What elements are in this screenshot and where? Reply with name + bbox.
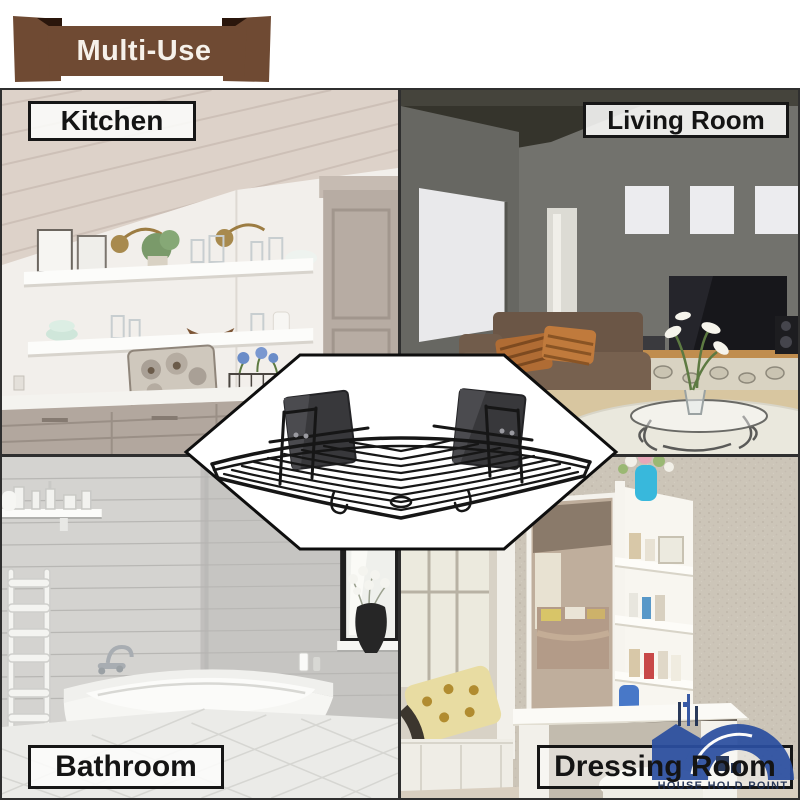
product-hexagon: [182, 350, 620, 554]
bathroom-label-text: Bathroom: [55, 750, 197, 784]
corner-shelf-product-image: [182, 350, 620, 554]
bathroom-label: Bathroom: [28, 745, 224, 789]
living-room-label-text: Living Room: [607, 105, 764, 136]
banner-label: Multi-Use: [44, 26, 244, 76]
kitchen-label-text: Kitchen: [61, 105, 164, 137]
dressing-room-label: Dressing Room: [537, 745, 793, 789]
living-room-label: Living Room: [583, 102, 789, 138]
dressing-room-label-text: Dressing Room: [554, 750, 776, 784]
kitchen-label: Kitchen: [28, 101, 196, 141]
product-collage: Multi-Use: [0, 0, 800, 800]
multi-use-ribbon-banner: Multi-Use: [4, 4, 276, 88]
